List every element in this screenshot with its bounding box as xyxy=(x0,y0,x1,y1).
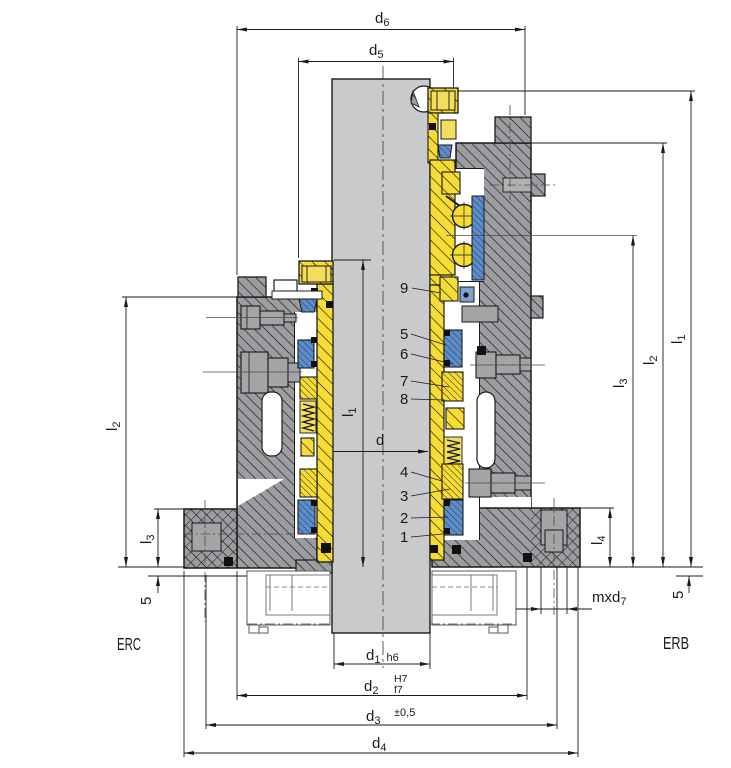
svg-text:1: 1 xyxy=(400,529,408,546)
svg-text:ERB: ERB xyxy=(663,633,689,653)
svg-text:f7: f7 xyxy=(394,684,403,696)
svg-text:8: 8 xyxy=(400,391,408,408)
svg-text:6: 6 xyxy=(400,346,408,363)
svg-text:ERC: ERC xyxy=(117,634,141,654)
svg-text:4: 4 xyxy=(400,464,408,481)
svg-text:5: 5 xyxy=(138,597,155,605)
svg-text:3: 3 xyxy=(400,488,408,505)
svg-text:d: d xyxy=(376,432,384,449)
svg-text:9: 9 xyxy=(400,280,408,297)
svg-text:5: 5 xyxy=(400,326,408,343)
svg-text:±0,5: ±0,5 xyxy=(394,707,415,719)
svg-text:7: 7 xyxy=(400,373,408,390)
svg-text:5: 5 xyxy=(670,591,687,599)
svg-text:2: 2 xyxy=(400,510,408,527)
